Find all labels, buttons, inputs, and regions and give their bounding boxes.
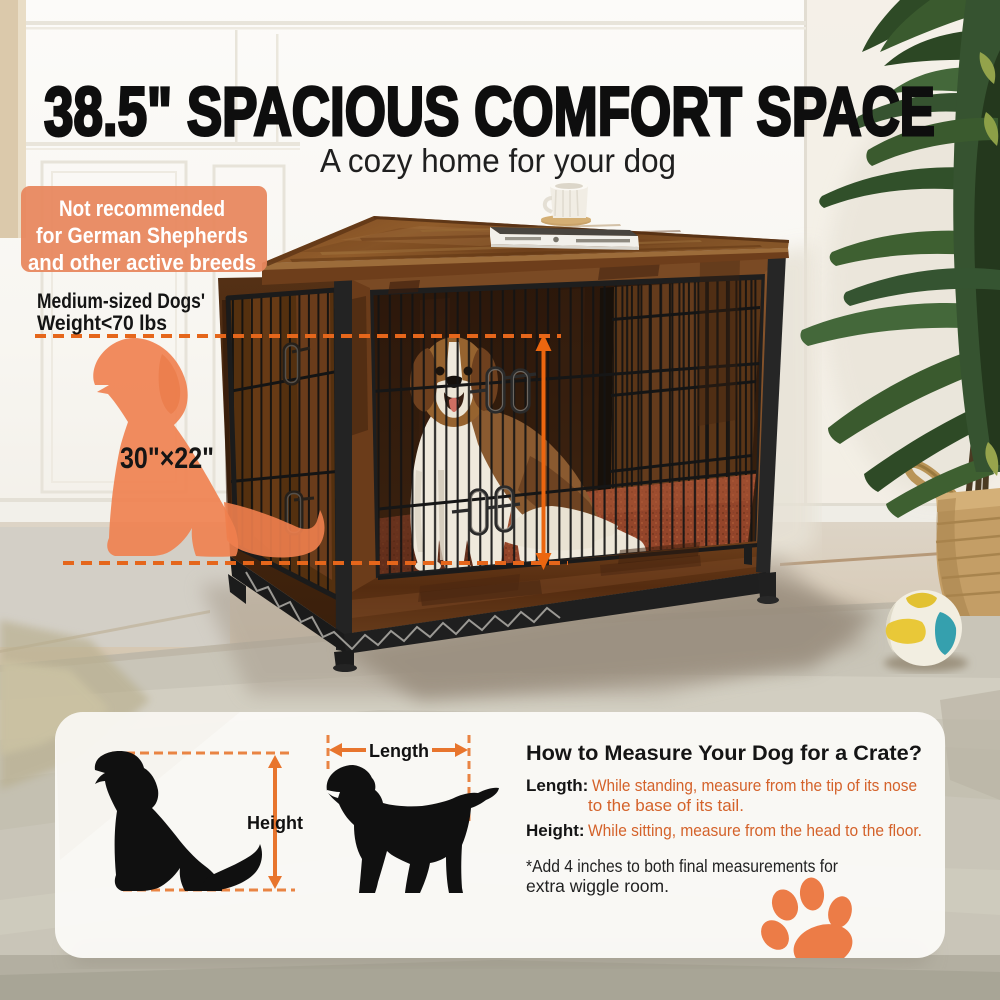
svg-text:and other active breeds: and other active breeds <box>28 250 256 275</box>
svg-text:While standing, measure from t: While standing, measure from the tip of … <box>592 776 917 795</box>
svg-text:*Add 4 inches to both final me: *Add 4 inches to both final measurements… <box>526 856 838 876</box>
svg-text:Height:: Height: <box>526 821 585 840</box>
svg-text:Height: Height <box>247 813 303 833</box>
svg-text:Not recommended: Not recommended <box>59 196 225 221</box>
svg-text:for German Shepherds: for German Shepherds <box>36 223 248 248</box>
svg-text:A cozy home for your dog: A cozy home for your dog <box>320 142 676 179</box>
svg-text:While sitting, measure from th: While sitting, measure from the head to … <box>588 821 922 840</box>
svg-text:to the base of its tail.: to the base of its tail. <box>588 796 744 815</box>
svg-text:Medium-sized Dogs': Medium-sized Dogs' <box>37 290 205 313</box>
svg-text:Weight<70 lbs: Weight<70 lbs <box>37 312 167 335</box>
svg-text:Length:: Length: <box>526 776 588 795</box>
svg-text:30"×22": 30"×22" <box>120 442 214 475</box>
svg-text:How to Measure Your Dog for a: How to Measure Your Dog for a Crate? <box>526 742 922 765</box>
svg-text:38.5" SPACIOUS COMFORT SPACE: 38.5" SPACIOUS COMFORT SPACE <box>44 73 935 150</box>
svg-text:extra wiggle room.: extra wiggle room. <box>526 876 669 896</box>
svg-text:Length: Length <box>369 741 429 761</box>
